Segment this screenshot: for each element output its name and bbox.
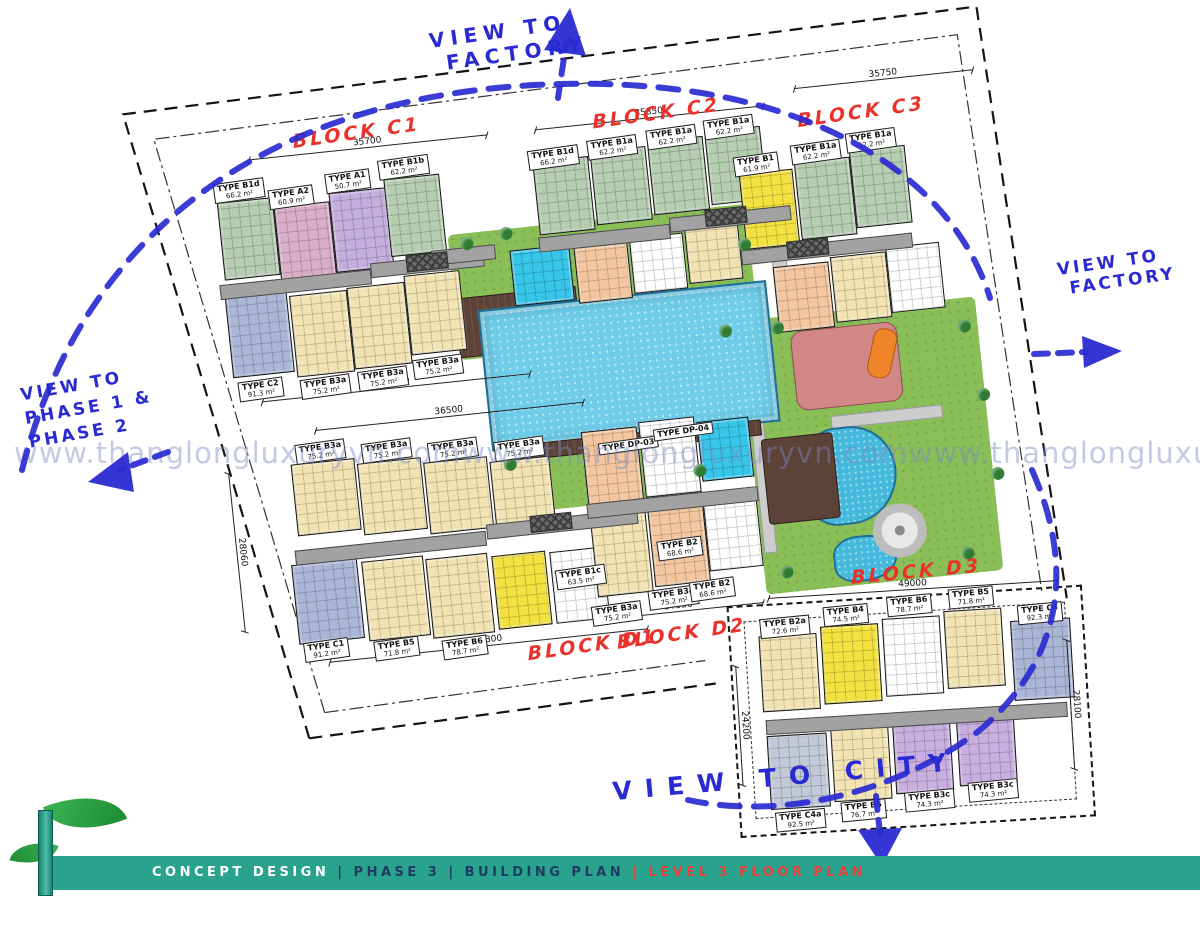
clubhouse [760, 432, 841, 525]
footer-concept-design: CONCEPT DESIGN [152, 865, 329, 880]
building-unit [357, 457, 428, 535]
dimension-value: 35750 [868, 67, 898, 80]
building-unit [491, 551, 552, 630]
arrow-left-icon [88, 452, 134, 492]
unit-type-label: TYPE C291.3 m² [237, 376, 284, 402]
unit-type-label: TYPE B474.5 m² [822, 603, 869, 627]
block-d3-area: BLOCK D3 49000 24200 28100 TYPE B2a72.6 … [711, 556, 1107, 847]
building-unit [758, 633, 821, 712]
boundary-labels [87, 0, 1141, 58]
unit-type-label: TYPE B678.7 m² [441, 634, 488, 660]
building-unit [882, 615, 945, 696]
building-unit [361, 555, 431, 641]
leaf-icon [43, 780, 127, 847]
dimension-value: 28100 [1070, 690, 1082, 719]
footer-phase-plan: | PHASE 3 | BUILDING PLAN [329, 865, 632, 880]
tree-icon [976, 387, 990, 401]
dimension-value: 36500 [434, 404, 464, 417]
logo-stem [38, 810, 53, 896]
building-unit [291, 458, 362, 536]
building-unit [509, 244, 575, 306]
tree-icon [991, 466, 1005, 480]
building-unit [794, 157, 858, 240]
dimension-line: 35750 [794, 69, 973, 89]
building-units [87, 0, 1141, 58]
unit-type-label: TYPE B3a75.2 m² [412, 353, 465, 380]
building-unit [403, 270, 467, 355]
unit-type-label: TYPE B3a75.2 m² [357, 365, 410, 392]
unit-type-label: TYPE C492.3 m² [1017, 601, 1064, 625]
dimension-lines: 35700 39350 35850 35750 36500 39300 2806… [87, 0, 1141, 58]
block-c3-unit-labels: TYPE B161.9 m² TYPE B1a62.2 m² TYPE B1a6… [87, 0, 1141, 58]
unit-type-label: TYPE B571.8 m² [948, 585, 995, 609]
building-unit [820, 623, 883, 704]
building-unit [573, 242, 633, 303]
footer-title: CONCEPT DESIGN | PHASE 3 | BUILDING PLAN… [152, 856, 866, 890]
building-unit [291, 558, 365, 644]
footer-bar: CONCEPT DESIGN | PHASE 3 | BUILDING PLAN… [42, 856, 1200, 890]
building-unit [849, 145, 913, 228]
walk-paths [87, 0, 1141, 58]
building-unit [274, 201, 338, 284]
block-c3-label: BLOCK C3 [797, 92, 926, 132]
footer-level-plan: | LEVEL 3 FLOOR PLAN [632, 865, 866, 880]
building-unit [423, 456, 494, 534]
trees [87, 0, 1141, 58]
building-unit [346, 282, 412, 370]
lawn-areas [87, 0, 1141, 58]
logo-leaf [20, 792, 150, 896]
block-d1-unit-labels: TYPE B3a75.2 m² TYPE B3a75.2 m² TYPE B3a… [87, 0, 1141, 58]
building-unit [943, 608, 1006, 689]
building-unit [684, 223, 744, 284]
building-unit [830, 251, 893, 322]
dimension-line: 28060 [228, 473, 246, 632]
building-unit [1010, 617, 1075, 701]
building-unit [289, 290, 355, 378]
building-unit [383, 174, 447, 257]
block-c2-unit-labels: TYPE B1d66.2 m² TYPE B1a62.2 m² TYPE B1a… [87, 0, 1141, 58]
unit-type-label: TYPE B3a75.2 m² [299, 373, 352, 400]
dimension-value: 28060 [236, 537, 249, 567]
lift-cores [87, 0, 1141, 58]
building-unit [425, 553, 495, 639]
dimension-value: 24200 [739, 711, 751, 740]
corridor-bands [87, 0, 1141, 58]
building-unit [225, 290, 295, 378]
block-c1-unit-labels: TYPE B1d66.2 m² TYPE A260.9 m² TYPE A150… [87, 0, 1141, 58]
unit-type-label: TYPE B678.7 m² [886, 593, 933, 617]
block-d2-unit-labels: TYPE B3a75.2 m² TYPE B3a75.2 m² TYPE B26… [87, 0, 1141, 58]
building-unit [885, 242, 946, 313]
block-c2-label: BLOCK C2 [592, 94, 721, 134]
